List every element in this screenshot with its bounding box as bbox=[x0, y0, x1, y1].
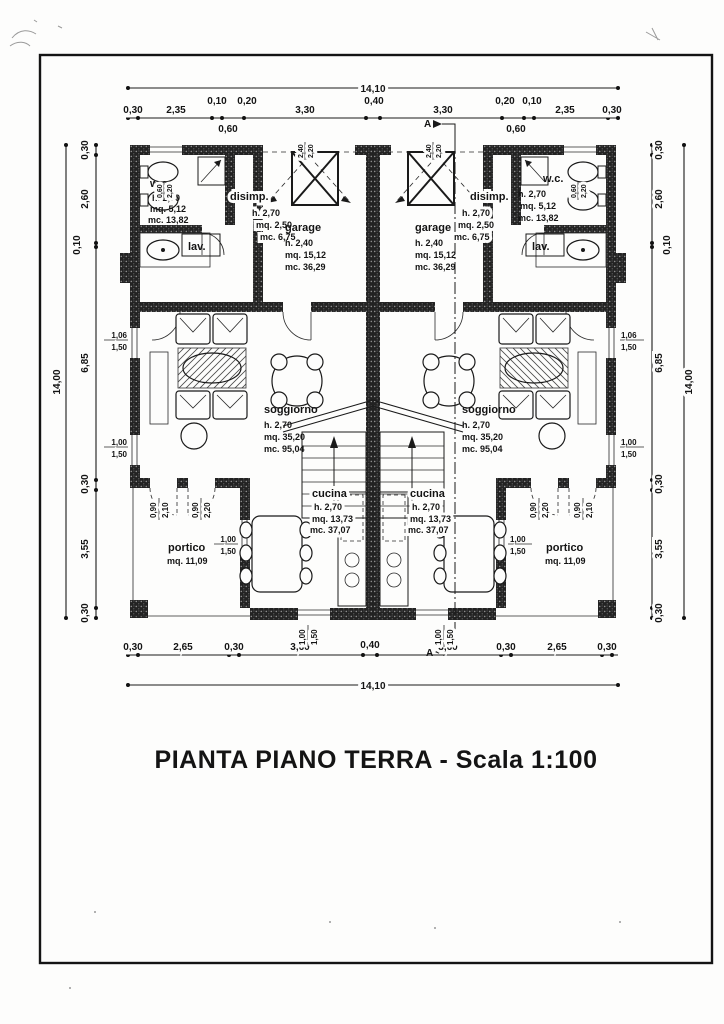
dim: 2,60 bbox=[80, 189, 91, 209]
room-disimp-label: disimp. bbox=[470, 191, 509, 203]
window-tag: 1,00 1,50 bbox=[214, 535, 238, 556]
svg-text:1,00: 1,00 bbox=[298, 629, 307, 645]
svg-text:2,20: 2,20 bbox=[308, 144, 315, 158]
dim-right-overall: 14,00 bbox=[684, 369, 695, 394]
svg-text:2,40: 2,40 bbox=[426, 144, 433, 158]
window-tag: 1,00 1,50 bbox=[104, 438, 128, 459]
floor-plan-drawing: A A bbox=[0, 0, 724, 1024]
dim: 2,60 bbox=[654, 189, 665, 209]
dim: 3,30 bbox=[433, 105, 453, 116]
svg-text:1,00: 1,00 bbox=[111, 438, 127, 447]
dim: 0,10 bbox=[522, 96, 542, 107]
svg-text:1,50: 1,50 bbox=[446, 629, 455, 645]
room-garage-mc: mc. 36,29 bbox=[285, 262, 326, 272]
door-tag: 0,90 2,20 bbox=[191, 498, 212, 520]
room-disimp-mc: mc. 6,75 bbox=[454, 232, 490, 242]
svg-text:1,50: 1,50 bbox=[310, 629, 319, 645]
dim: 0,30 bbox=[654, 603, 665, 623]
scanned-floor-plan-page: A A bbox=[0, 0, 724, 1024]
dim: 0,60 bbox=[506, 124, 526, 135]
room-garage-label: garage bbox=[285, 222, 321, 234]
dim-top-overall: 14,10 bbox=[360, 84, 385, 95]
svg-text:2,40: 2,40 bbox=[298, 144, 305, 158]
window-tag: 1,06 1,50 bbox=[620, 331, 644, 352]
door-tag: 0,90 2,20 bbox=[529, 498, 550, 520]
room-lav-label: lav. bbox=[532, 241, 550, 253]
dim-bottom-overall: 14,10 bbox=[360, 681, 385, 692]
svg-text:1,06: 1,06 bbox=[621, 331, 637, 340]
svg-text:2,20: 2,20 bbox=[541, 502, 550, 518]
dim: 3,30 bbox=[295, 105, 315, 116]
dim: 0,60 bbox=[218, 124, 238, 135]
room-wc-label: w.c. bbox=[542, 173, 563, 185]
dim: 0,20 bbox=[495, 96, 515, 107]
room-cucina-mc: mc. 37,07 bbox=[408, 525, 449, 535]
dim: 6,85 bbox=[80, 353, 91, 373]
room-lav-label: lav. bbox=[188, 241, 206, 253]
room-soggiorno-h: h. 2,70 bbox=[462, 420, 490, 430]
room-portico-mq: mq. 11,09 bbox=[167, 556, 208, 566]
right-unit-mirror bbox=[373, 143, 626, 620]
dim: 2,65 bbox=[547, 642, 567, 653]
room-garage-label: garage bbox=[415, 222, 451, 234]
room-soggiorno-label: soggiorno bbox=[264, 404, 318, 416]
dim: 6,85 bbox=[654, 353, 665, 373]
room-garage-mq: mq. 15,12 bbox=[415, 250, 456, 260]
room-cucina-label: cucina bbox=[410, 488, 446, 500]
svg-text:1,50: 1,50 bbox=[111, 450, 127, 459]
room-wc-h: h. 2,70 bbox=[518, 189, 546, 199]
room-portico-mq: mq. 11,09 bbox=[545, 556, 586, 566]
svg-text:1,50: 1,50 bbox=[621, 343, 637, 352]
svg-text:1,00: 1,00 bbox=[621, 438, 637, 447]
room-soggiorno-mq: mq. 35,20 bbox=[462, 432, 503, 442]
room-portico-label: portico bbox=[168, 542, 206, 554]
window-tag: 1,06 1,50 bbox=[104, 331, 128, 352]
room-cucina-h: h. 2,70 bbox=[314, 502, 342, 512]
dim: 0,30 bbox=[602, 105, 622, 116]
dims-top: 14,10 0,30 2,35 0,10 0,20 0,60 3,30 0,40… bbox=[123, 84, 622, 135]
dim: 2,65 bbox=[173, 642, 193, 653]
room-wc-mq: mq. 5,12 bbox=[520, 201, 556, 211]
svg-text:1,50: 1,50 bbox=[621, 450, 637, 459]
room-soggiorno-mc: mc. 95,04 bbox=[462, 444, 503, 454]
room-disimp-h: h. 2,70 bbox=[252, 208, 280, 218]
dim: 0,30 bbox=[654, 474, 665, 494]
svg-text:1,06: 1,06 bbox=[111, 331, 127, 340]
svg-text:2,20: 2,20 bbox=[436, 144, 443, 158]
svg-text:0,60: 0,60 bbox=[571, 184, 578, 198]
room-disimp-label: disimp. bbox=[230, 191, 269, 203]
dim: 2,35 bbox=[166, 105, 186, 116]
svg-text:0,90: 0,90 bbox=[573, 502, 582, 518]
dim: 3,55 bbox=[654, 539, 665, 559]
room-cucina-h: h. 2,70 bbox=[412, 502, 440, 512]
svg-text:1,50: 1,50 bbox=[220, 547, 236, 556]
room-wc-mq: mq. 5,12 bbox=[150, 204, 186, 214]
room-soggiorno-label: soggiorno bbox=[462, 404, 516, 416]
dim: 0,40 bbox=[364, 96, 384, 107]
room-wc-mc: mc. 13,82 bbox=[518, 213, 559, 223]
svg-text:1,50: 1,50 bbox=[510, 547, 526, 556]
room-garage-mc: mc. 36,29 bbox=[415, 262, 456, 272]
drawing-title: PIANTA PIANO TERRA - Scala 1:100 bbox=[155, 746, 598, 774]
door-tag: 0,90 2,10 bbox=[573, 498, 594, 520]
room-soggiorno-mc: mc. 95,04 bbox=[264, 444, 305, 454]
dim: 0,10 bbox=[72, 235, 83, 255]
room-soggiorno-h: h. 2,70 bbox=[264, 420, 292, 430]
dim: 0,20 bbox=[237, 96, 257, 107]
dims-left: 0,30 2,60 0,10 6,85 0,30 3,55 0,30 14,00 bbox=[52, 140, 91, 623]
room-garage-h: h. 2,40 bbox=[285, 238, 313, 248]
svg-text:0,90: 0,90 bbox=[191, 502, 200, 518]
room-portico-label: portico bbox=[546, 542, 584, 554]
dim: 0,10 bbox=[207, 96, 227, 107]
section-marker-a-bottom: A bbox=[426, 648, 433, 659]
dim: 0,30 bbox=[597, 642, 617, 653]
dim: 3,55 bbox=[80, 539, 91, 559]
dim: 0,30 bbox=[123, 642, 143, 653]
dim: 0,30 bbox=[80, 474, 91, 494]
svg-text:1,00: 1,00 bbox=[220, 535, 236, 544]
dim: 0,30 bbox=[80, 603, 91, 623]
svg-text:2,20: 2,20 bbox=[581, 184, 588, 198]
dim: 2,35 bbox=[555, 105, 575, 116]
room-cucina-mq: mq. 13,73 bbox=[410, 514, 451, 524]
window-tag: 1,00 1,50 bbox=[620, 438, 644, 459]
room-garage-mq: mq. 15,12 bbox=[285, 250, 326, 260]
section-marker-a-top: A bbox=[424, 119, 431, 130]
dim: 0,30 bbox=[80, 140, 91, 160]
svg-text:1,00: 1,00 bbox=[434, 629, 443, 645]
svg-text:2,20: 2,20 bbox=[167, 184, 174, 198]
dim-left-overall: 14,00 bbox=[52, 369, 63, 394]
dim: 0,30 bbox=[496, 642, 516, 653]
svg-text:0,60: 0,60 bbox=[157, 184, 164, 198]
room-soggiorno-mq: mq. 35,20 bbox=[264, 432, 305, 442]
dim: 0,10 bbox=[662, 235, 673, 255]
svg-text:1,50: 1,50 bbox=[111, 343, 127, 352]
dims-bottom: 14,10 0,30 2,65 0,30 3,60 0,40 3,60 0,30… bbox=[123, 640, 617, 692]
svg-text:0,90: 0,90 bbox=[149, 502, 158, 518]
dim: 0,30 bbox=[654, 140, 665, 160]
room-disimp-h: h. 2,70 bbox=[462, 208, 490, 218]
dim: 0,40 bbox=[360, 640, 380, 651]
room-disimp-mq: mq. 2,50 bbox=[458, 220, 494, 230]
room-cucina-label: cucina bbox=[312, 488, 348, 500]
dim: 0,30 bbox=[123, 105, 143, 116]
room-wc-mc: mc. 13,82 bbox=[148, 215, 189, 225]
room-garage-h: h. 2,40 bbox=[415, 238, 443, 248]
dim: 0,30 bbox=[224, 642, 244, 653]
svg-text:2,10: 2,10 bbox=[161, 502, 170, 518]
dims-right: 0,30 2,60 0,10 6,85 0,30 3,55 0,30 14,00 bbox=[654, 140, 695, 623]
window-tag: 1,00 1,50 bbox=[508, 535, 532, 556]
svg-text:2,20: 2,20 bbox=[203, 502, 212, 518]
room-cucina-mq: mq. 13,73 bbox=[312, 514, 353, 524]
svg-text:2,10: 2,10 bbox=[585, 502, 594, 518]
room-cucina-mc: mc. 37,07 bbox=[310, 525, 351, 535]
svg-text:0,90: 0,90 bbox=[529, 502, 538, 518]
svg-text:1,00: 1,00 bbox=[510, 535, 526, 544]
